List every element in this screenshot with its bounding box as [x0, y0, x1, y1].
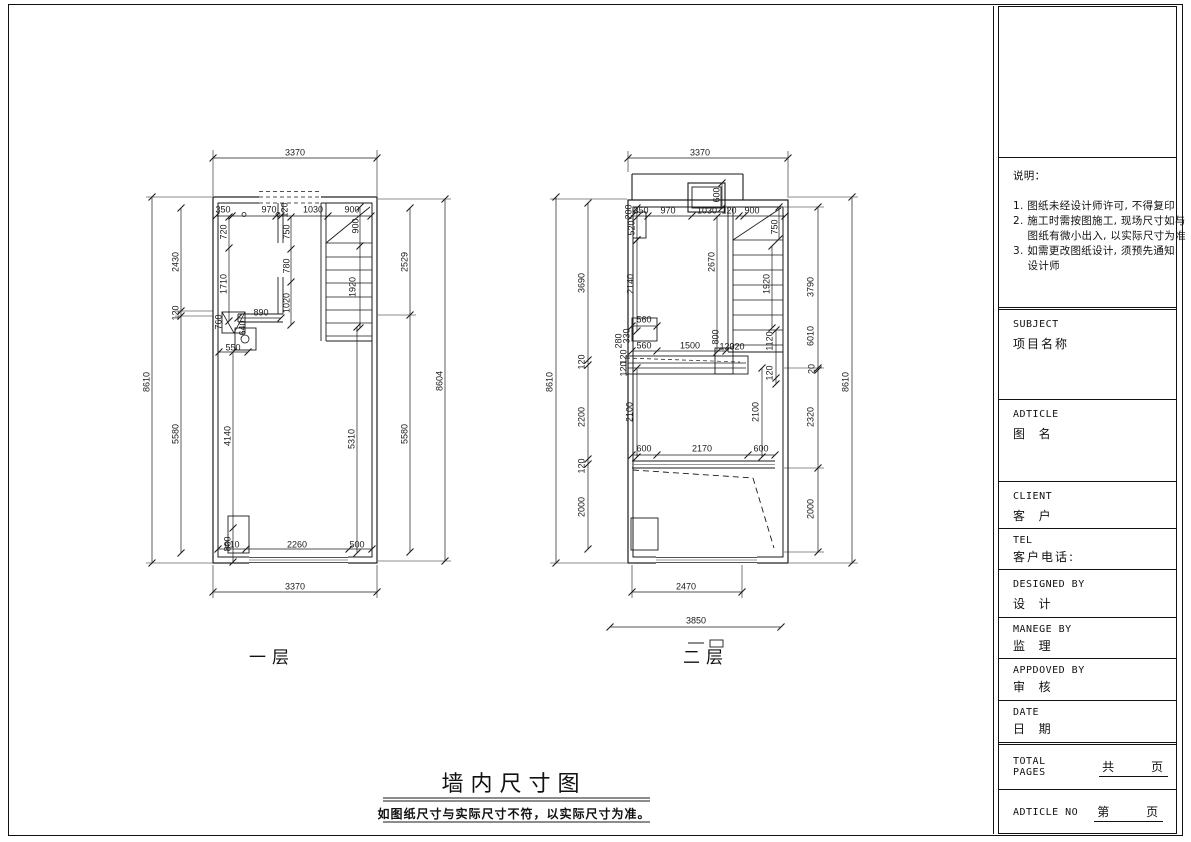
dim-label: 3370: [690, 149, 710, 158]
field-label-en: SUBJECT: [1013, 319, 1168, 330]
field-label-cn: 第 页: [1094, 803, 1163, 822]
dim-label: 8610: [546, 372, 555, 392]
dim-label: 3690: [578, 273, 587, 293]
dim-label: 120: [281, 202, 290, 217]
dim-label: 120: [578, 458, 587, 473]
dim-label: 900: [344, 206, 359, 215]
dim-label: 1030: [697, 207, 717, 216]
field-label-cn: 日 期: [1013, 720, 1168, 737]
field-label-en: APPDOVED BY: [1013, 665, 1168, 676]
dim-label: 1920: [763, 274, 772, 294]
field-label-cn: 客 户: [1013, 507, 1168, 524]
title-block-row-date: DATE日 期: [999, 700, 1176, 742]
dim-label: 890: [253, 309, 268, 318]
dim-label: 200: [625, 204, 634, 219]
dim-label: 320: [729, 343, 744, 352]
dim-label: 3850: [686, 617, 706, 626]
dim-label: 8610: [143, 372, 152, 392]
dim-label: 3790: [807, 277, 816, 297]
note-line: 2. 施工时需按图施工, 现场尺寸如与: [1013, 214, 1168, 229]
field-label-cn: 项目名称: [1013, 335, 1168, 352]
dim-label: 120: [766, 365, 775, 380]
dim-label: 1500: [680, 342, 700, 351]
note-line: 图纸有微小出入, 以实际尺寸为准: [1013, 229, 1168, 244]
note-line: 3. 如需更改图纸设计, 须预先通知: [1013, 244, 1168, 259]
drawing-sheet: 一层 二层 墙内尺寸图 如图纸尺寸与实际尺寸不符，以实际尺寸为准。 337035…: [0, 0, 1191, 842]
dim-label: 120: [172, 305, 181, 320]
dim-label: 2000: [807, 499, 816, 519]
field-label-en: DESIGNED BY: [1013, 579, 1168, 590]
dim-label: 350: [215, 206, 230, 215]
notes-section: 说明：1. 图纸未经设计师许可, 不得复印.2. 施工时需按图施工, 现场尺寸如…: [999, 157, 1176, 307]
dim-label: 2170: [692, 445, 712, 454]
title-block-row-appdoved-by: APPDOVED BY审 核: [999, 658, 1176, 700]
dim-label: 720: [220, 224, 229, 239]
field-label-en: ADTICLE: [1013, 409, 1168, 420]
title-block-row-total-pages: TOTAL PAGES共 页: [999, 742, 1176, 789]
field-label-cn: 图 名: [1013, 425, 1168, 442]
dim-label: 750: [283, 224, 292, 239]
dim-label: 900: [744, 207, 759, 216]
dim-label: 2000: [578, 497, 587, 517]
dim-label: 280: [615, 333, 624, 348]
dim-label: 1020: [283, 293, 292, 313]
title-block-row-tel: TEL客户电话:: [999, 528, 1176, 569]
dim-label: 350: [633, 207, 648, 216]
dim-label: 2200: [578, 407, 587, 427]
floor1-label: 一层: [249, 643, 295, 668]
dim-label: 1710: [220, 274, 229, 294]
dim-label: 4140: [224, 426, 233, 446]
title-block-row-client: CLIENT客 户: [999, 481, 1176, 528]
title-block: 说明：1. 图纸未经设计师许可, 不得复印.2. 施工时需按图施工, 现场尺寸如…: [998, 6, 1177, 834]
accuracy-note: 如图纸尺寸与实际尺寸不符，以实际尺寸为准。: [377, 805, 650, 822]
drawing-area: 一层 二层 墙内尺寸图 如图纸尺寸与实际尺寸不符，以实际尺寸为准。 337035…: [0, 0, 998, 842]
dim-label: 1120: [766, 331, 775, 350]
field-label-cn: 监 理: [1013, 637, 1168, 654]
dim-label: 970: [261, 206, 276, 215]
dim-label: 2430: [172, 252, 181, 272]
field-label-en: TOTAL PAGES: [1013, 756, 1083, 778]
dim-label: 8604: [436, 371, 445, 391]
title-block-row-subject: SUBJECT项目名称: [999, 307, 1176, 399]
dim-label: 500: [349, 541, 364, 550]
dim-label: 1920: [349, 277, 358, 297]
field-label-en: CLIENT: [1013, 491, 1168, 502]
dim-label: 8610: [842, 372, 851, 392]
title-block-rows: SUBJECT项目名称ADTICLE图 名CLIENT客 户TEL客户电话:DE…: [999, 307, 1176, 834]
note-line: 设计师: [1013, 259, 1168, 274]
dim-label: 20: [808, 364, 817, 374]
title-block-row-adticle-no: ADTICLE NO第 页: [999, 789, 1176, 834]
dim-label: 330: [623, 328, 632, 343]
dim-label: 2100: [752, 402, 761, 422]
dim-label: 5580: [172, 424, 181, 444]
dim-label: 900: [352, 218, 361, 233]
dim-label: 2529: [401, 252, 410, 272]
floor2-label: 二层: [683, 643, 729, 668]
note-line: 1. 图纸未经设计师许可, 不得复印.: [1013, 199, 1168, 214]
dim-label: 2470: [676, 583, 696, 592]
title-block-empty-box: [999, 7, 1176, 157]
dim-label: 2260: [287, 541, 307, 550]
dim-label: 970: [660, 207, 675, 216]
dim-label: 640: [239, 320, 248, 335]
field-label-cn: 共 页: [1099, 758, 1168, 777]
dim-label: 5310: [348, 429, 357, 449]
dim-label: 600: [713, 187, 722, 202]
dim-label: 3370: [285, 583, 305, 592]
dim-label: 2140: [627, 274, 636, 294]
field-label-en: MANEGE BY: [1013, 624, 1168, 635]
field-label-en: DATE: [1013, 707, 1168, 718]
dim-label: 760: [215, 314, 224, 329]
dim-label: 550: [225, 344, 240, 353]
dim-label: 2670: [708, 252, 717, 272]
field-label-cn: 客户电话:: [1013, 548, 1168, 565]
dim-label: 5580: [401, 424, 410, 444]
field-label-en: TEL: [1013, 535, 1168, 546]
dim-label: 120: [620, 361, 629, 376]
title-block-row-designed-by: DESIGNED BY设 计: [999, 569, 1176, 617]
dim-label: 1030: [303, 206, 323, 215]
dim-label: 2100: [626, 402, 635, 422]
dim-label: 560: [636, 316, 651, 325]
dim-label: 560: [636, 342, 651, 351]
drawing-title: 墙内尺寸图: [441, 766, 586, 798]
dim-label: 780: [283, 258, 292, 273]
dim-label: 520: [628, 220, 637, 235]
field-label-cn: 设 计: [1013, 595, 1168, 612]
field-label-en: ADTICLE NO: [1013, 807, 1078, 818]
title-block-row-adticle: ADTICLE图 名: [999, 399, 1176, 481]
dim-label: 610: [224, 541, 239, 550]
title-block-row-manege-by: MANEGE BY监 理: [999, 617, 1176, 658]
dim-label: 600: [636, 445, 651, 454]
dim-label: 120: [721, 207, 736, 216]
note-line: [1013, 184, 1168, 199]
field-label-cn: 审 核: [1013, 678, 1168, 695]
dim-label: 750: [771, 219, 780, 234]
dim-label: 600: [753, 445, 768, 454]
note-line: 说明：: [1013, 169, 1168, 184]
dim-label: 2320: [807, 407, 816, 427]
dim-label: 120: [578, 354, 587, 369]
dim-label: 3370: [285, 149, 305, 158]
dim-label: 6010: [807, 326, 816, 346]
